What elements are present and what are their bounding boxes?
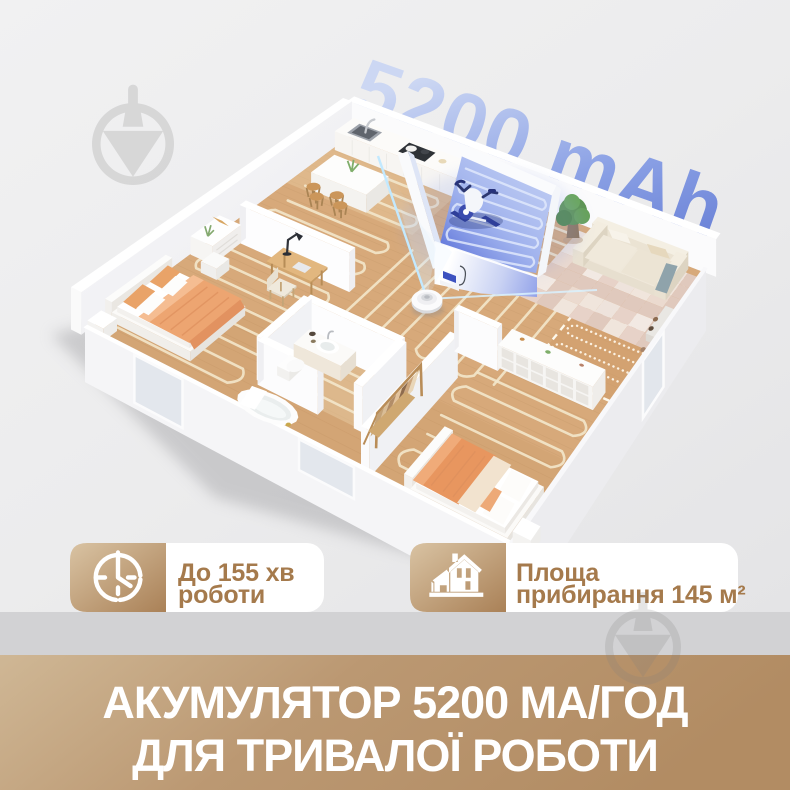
svg-text:АКУМУЛЯТОР 5200 МА/ГОД: АКУМУЛЯТОР 5200 МА/ГОД [102, 677, 688, 728]
svg-text:роботи: роботи [178, 581, 265, 609]
svg-text:прибирання 145 м²: прибирання 145 м² [516, 581, 746, 609]
svg-text:ДЛЯ ТРИВАЛОЇ РОБОТИ: ДЛЯ ТРИВАЛОЇ РОБОТИ [132, 730, 658, 781]
